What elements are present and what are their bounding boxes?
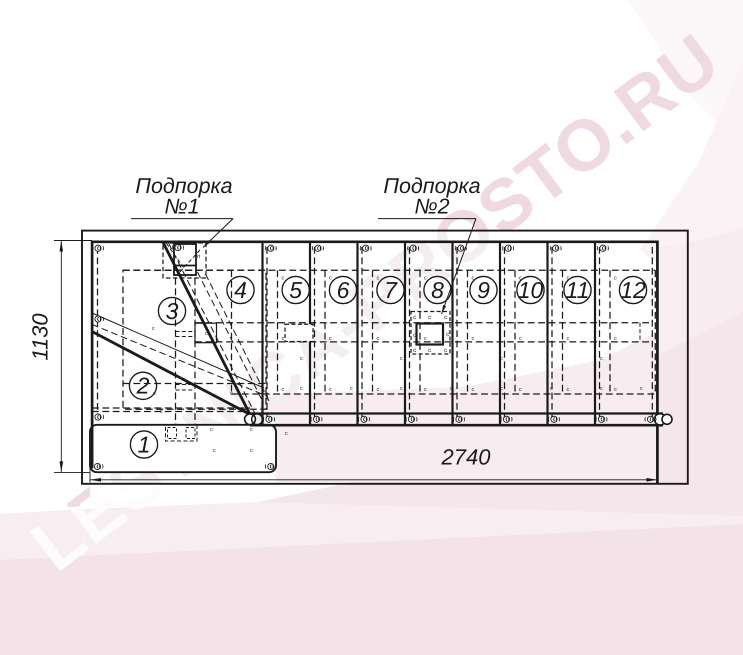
svg-text:c: c: [265, 336, 268, 342]
svg-text:c: c: [500, 356, 503, 362]
svg-text:4: 4: [234, 277, 247, 303]
svg-text:2: 2: [136, 373, 150, 399]
svg-text:c: c: [413, 347, 417, 354]
svg-text:5: 5: [289, 277, 302, 303]
svg-text:6: 6: [337, 277, 350, 303]
svg-text:7: 7: [384, 277, 398, 303]
svg-text:8: 8: [431, 277, 444, 303]
svg-text:c: c: [282, 276, 285, 282]
svg-text:c: c: [230, 391, 233, 397]
svg-text:c: c: [205, 331, 208, 337]
svg-text:c: c: [377, 336, 380, 342]
svg-text:c: c: [519, 336, 522, 342]
svg-text:c: c: [282, 336, 285, 342]
svg-text:c: c: [450, 386, 453, 392]
svg-text:c: c: [400, 356, 403, 362]
svg-text:c: c: [400, 386, 403, 392]
svg-text:2740: 2740: [441, 445, 492, 470]
svg-text:c: c: [519, 276, 522, 282]
svg-text:c: c: [300, 386, 303, 392]
svg-text:c: c: [472, 336, 475, 342]
svg-text:c: c: [444, 314, 448, 321]
svg-text:12: 12: [620, 277, 646, 303]
svg-text:c: c: [567, 276, 570, 282]
svg-text:c: c: [614, 387, 617, 393]
svg-text:1130: 1130: [28, 313, 53, 361]
svg-text:c: c: [250, 448, 253, 454]
svg-text:c: c: [640, 386, 643, 392]
svg-text:c: c: [614, 276, 617, 282]
svg-text:c: c: [444, 347, 448, 354]
svg-text:c: c: [567, 387, 570, 393]
svg-text:c: c: [424, 387, 427, 393]
svg-text:c: c: [550, 386, 553, 392]
svg-text:п: п: [197, 254, 200, 260]
svg-text:c: c: [600, 386, 603, 392]
svg-text:c: c: [377, 276, 380, 282]
svg-text:1: 1: [138, 431, 151, 457]
svg-text:c: c: [413, 332, 417, 339]
svg-text:c: c: [428, 314, 432, 321]
svg-text:9: 9: [477, 277, 490, 303]
svg-text:c: c: [428, 347, 432, 354]
svg-text:c: c: [424, 276, 427, 282]
svg-text:c: c: [160, 409, 163, 415]
svg-text:c: c: [519, 387, 522, 393]
svg-text:№2: №2: [414, 195, 449, 219]
svg-text:c: c: [300, 356, 303, 362]
svg-text:c: c: [153, 391, 156, 397]
svg-text:c: c: [213, 448, 216, 454]
svg-text:c: c: [567, 336, 570, 342]
svg-text:c: c: [600, 356, 603, 362]
svg-text:c: c: [142, 356, 145, 362]
svg-text:№1: №1: [164, 195, 199, 219]
svg-text:c: c: [614, 336, 617, 342]
svg-text:c: c: [329, 336, 332, 342]
svg-text:c: c: [329, 276, 332, 282]
svg-text:c: c: [413, 314, 417, 321]
svg-text:c: c: [250, 427, 253, 433]
svg-text:c: c: [329, 387, 332, 393]
svg-text:3: 3: [166, 298, 179, 324]
svg-text:c: c: [500, 386, 503, 392]
svg-text:c: c: [424, 336, 427, 342]
svg-text:c: c: [285, 431, 288, 437]
svg-text:c: c: [152, 326, 155, 332]
svg-text:c: c: [350, 386, 353, 392]
svg-text:c: c: [446, 331, 450, 338]
svg-text:c: c: [472, 387, 475, 393]
svg-text:c: c: [282, 387, 285, 393]
svg-text:c: c: [472, 276, 475, 282]
svg-text:c: c: [377, 387, 380, 393]
svg-text:c: c: [210, 427, 213, 433]
